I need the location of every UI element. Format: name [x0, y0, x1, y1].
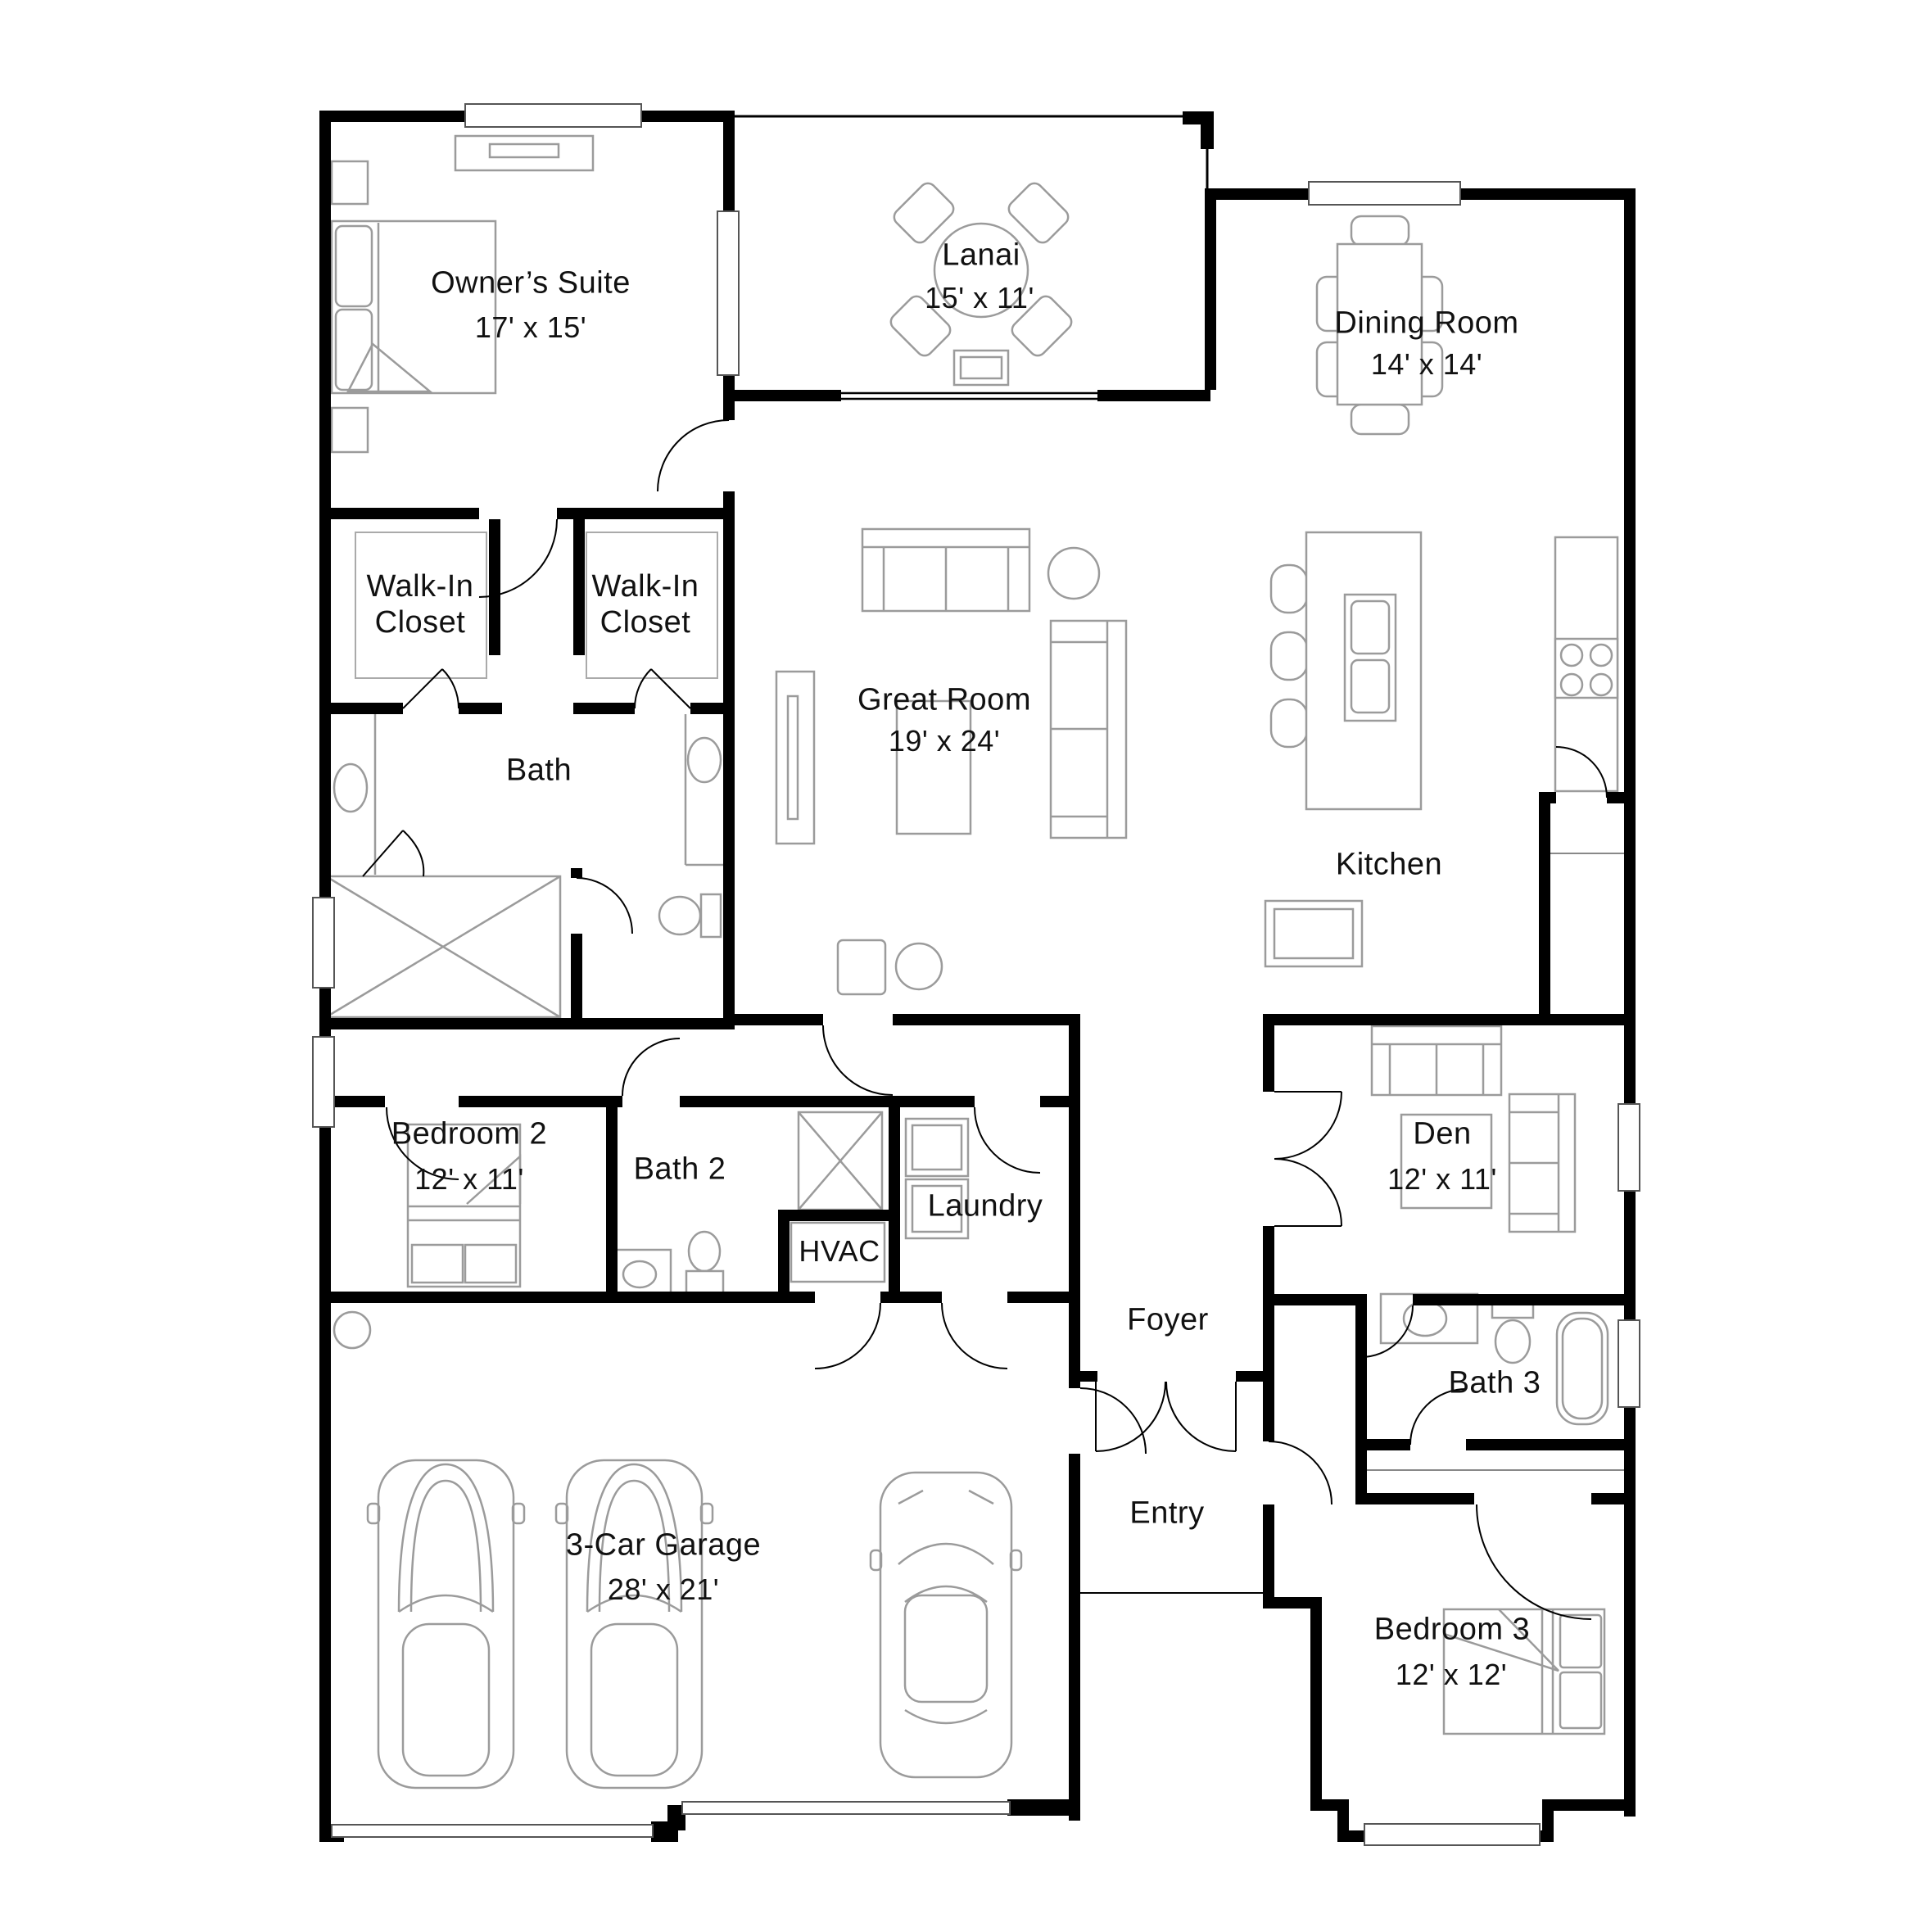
room-label-hvac: HVAC — [799, 1234, 880, 1269]
window-icon — [313, 898, 334, 988]
garage-door-icon — [682, 1802, 1010, 1814]
kitchen-furniture — [1265, 532, 1618, 966]
window-icon — [1309, 182, 1460, 205]
room-label-bath: Bath — [506, 753, 572, 789]
window-icon — [1618, 1320, 1640, 1407]
room-dims-bedroom-3: 12' x 12' — [1396, 1658, 1507, 1692]
room-label-walk-in-closet-left: Walk-In Closet — [367, 568, 474, 640]
toilet-icon — [659, 897, 700, 934]
floor-plan: Owner’s Suite 17' x 15' Lanai 15' x 11' … — [0, 0, 1932, 1932]
room-label-garage: 3-Car Garage — [566, 1528, 761, 1563]
room-label-walk-in-closet-right: Walk-In Closet — [592, 568, 699, 640]
great-room-furniture — [776, 529, 1126, 994]
window-icon — [313, 1037, 334, 1127]
room-dims-garage: 28' x 21' — [608, 1572, 719, 1607]
room-dims-den: 12' x 11' — [1387, 1162, 1497, 1197]
room-label-bath-2: Bath 2 — [634, 1152, 726, 1188]
room-label-dining-room: Dining Room — [1334, 306, 1518, 342]
room-label-lanai: Lanai — [942, 238, 1020, 274]
car-icon — [368, 1460, 524, 1788]
room-label-great-room: Great Room — [857, 683, 1031, 718]
room-label-owners-suite: Owner’s Suite — [431, 266, 631, 301]
window-icon — [717, 211, 739, 375]
car-icon — [871, 1473, 1021, 1777]
shower-icon — [799, 1112, 882, 1210]
sink-icon — [1404, 1301, 1446, 1336]
room-dims-owners-suite: 17' x 15' — [475, 310, 586, 345]
room-label-bedroom-3: Bedroom 3 — [1374, 1613, 1530, 1648]
furniture-layer — [326, 136, 1618, 1788]
sink-icon — [334, 764, 367, 812]
car-icon — [556, 1460, 713, 1788]
bed-icon — [332, 221, 495, 393]
room-dims-great-room: 19' x 24' — [889, 724, 1000, 758]
room-label-laundry: Laundry — [928, 1189, 1043, 1224]
walk-in-closet-right-line2: Closet — [600, 605, 691, 640]
window-icon — [1618, 1104, 1640, 1191]
walk-in-closet-left-line2: Closet — [375, 605, 466, 640]
sink-icon — [623, 1261, 656, 1287]
room-label-den: Den — [1413, 1117, 1471, 1152]
room-label-bedroom-2: Bedroom 2 — [391, 1117, 547, 1152]
sink-icon — [688, 738, 721, 782]
room-dims-bedroom-2: 12' x 11' — [414, 1162, 524, 1197]
window-icon — [1364, 1824, 1540, 1845]
garage-door-icon — [332, 1825, 653, 1837]
tub-icon — [326, 876, 560, 1017]
room-label-kitchen: Kitchen — [1336, 848, 1442, 883]
room-label-foyer: Foyer — [1127, 1303, 1209, 1338]
room-label-bath-3: Bath 3 — [1449, 1366, 1541, 1401]
toilet-icon — [689, 1232, 720, 1271]
window-icon — [465, 104, 641, 127]
toilet-icon — [1495, 1320, 1530, 1363]
den-furniture — [1372, 1026, 1575, 1232]
room-dims-dining-room: 14' x 14' — [1371, 347, 1482, 382]
room-dims-lanai: 15' x 11' — [925, 281, 1034, 315]
bath3-fixtures — [1381, 1294, 1608, 1424]
walk-in-closet-left-line1: Walk-In — [367, 569, 474, 604]
walk-in-closet-right-line1: Walk-In — [592, 569, 699, 604]
room-label-entry: Entry — [1129, 1496, 1204, 1532]
